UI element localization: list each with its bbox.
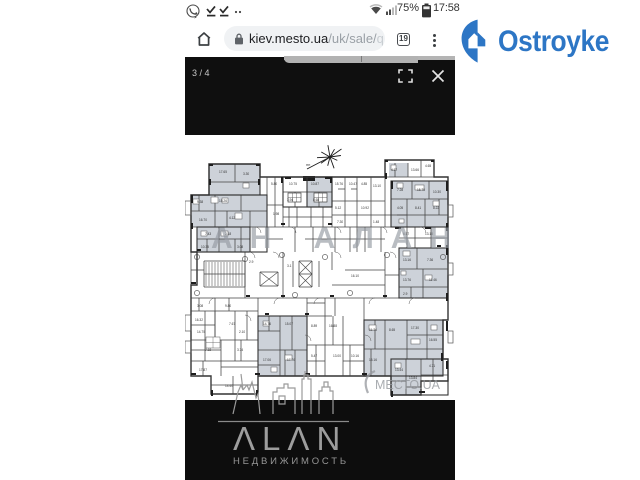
svg-text:4.71: 4.71 [429,364,435,368]
svg-text:17.65: 17.65 [219,170,227,174]
svg-text:7.67: 7.67 [229,322,235,326]
svg-text:АН АЛАН: АН АЛАН [211,222,455,255]
svg-text:15.75: 15.75 [417,188,425,192]
svg-text:МЕСТО.UA: МЕСТО.UA [375,378,441,392]
svg-text:4.77: 4.77 [391,168,397,172]
svg-text:3.08: 3.08 [197,304,203,308]
svg-text:14.76: 14.76 [263,322,271,326]
svg-text:7.36: 7.36 [427,258,433,262]
svg-text:10.30: 10.30 [433,190,441,194]
svg-text:17.76: 17.76 [287,358,295,362]
svg-text:пн: пн [306,162,310,167]
svg-text:13.44: 13.44 [395,368,403,372]
svg-text:11.74: 11.74 [369,328,377,332]
svg-text:15.26: 15.26 [219,199,227,203]
svg-text:10.87: 10.87 [311,182,319,186]
svg-text:10.75: 10.75 [289,182,297,186]
svg-text:10.92: 10.92 [361,206,369,210]
svg-text:13.10: 13.10 [373,184,381,188]
svg-text:4.12: 4.12 [229,216,235,220]
svg-text:16.32: 16.32 [195,318,203,322]
svg-text:8.41: 8.41 [415,206,421,210]
svg-text:3.94: 3.94 [287,198,293,202]
svg-text:11.46: 11.46 [429,278,437,282]
svg-text:7.28: 7.28 [397,188,403,192]
svg-text:2.10: 2.10 [239,330,245,334]
svg-text:15.16: 15.16 [369,358,377,362]
svg-text:7.18: 7.18 [205,348,211,352]
svg-text:4.05: 4.05 [397,206,403,210]
svg-text:10.47: 10.47 [349,182,357,186]
svg-text:16.10: 16.10 [351,274,359,278]
svg-text:16.55: 16.55 [429,338,437,342]
svg-text:10.16: 10.16 [351,354,359,358]
svg-text:1.98: 1.98 [273,212,279,216]
svg-text:17.30: 17.30 [411,326,419,330]
svg-text:16.70: 16.70 [199,218,207,222]
svg-text:15.76: 15.76 [335,182,343,186]
svg-text:8.22: 8.22 [433,206,439,210]
svg-text:9.80: 9.80 [225,304,231,308]
svg-text:14.75: 14.75 [197,330,205,334]
svg-text:4.65: 4.65 [425,164,431,168]
svg-text:5.12: 5.12 [335,206,341,210]
svg-text:4.85: 4.85 [361,182,367,186]
svg-text:13.76: 13.76 [403,278,411,282]
svg-text:2.9: 2.9 [249,260,254,264]
svg-text:13.16: 13.16 [403,258,411,262]
svg-text:10.35: 10.35 [201,245,209,249]
svg-text:3.1: 3.1 [287,264,292,268]
svg-text:16.88: 16.88 [329,324,337,328]
svg-text:17.06: 17.06 [263,358,271,362]
svg-text:8.68: 8.68 [313,198,319,202]
svg-text:3.74: 3.74 [237,348,243,352]
svg-text:8.65: 8.65 [389,328,395,332]
svg-text:15.07: 15.07 [285,322,293,326]
svg-text:13.00: 13.00 [333,354,341,358]
svg-text:5.47: 5.47 [311,354,317,358]
svg-text:5.80: 5.80 [271,182,277,186]
svg-text:8.89: 8.89 [311,324,317,328]
svg-text:9.38: 9.38 [197,200,203,204]
svg-text:3.30: 3.30 [243,172,249,176]
svg-text:2.9: 2.9 [403,292,408,296]
svg-text:17.87: 17.87 [199,368,207,372]
svg-text:13.66: 13.66 [411,168,419,172]
